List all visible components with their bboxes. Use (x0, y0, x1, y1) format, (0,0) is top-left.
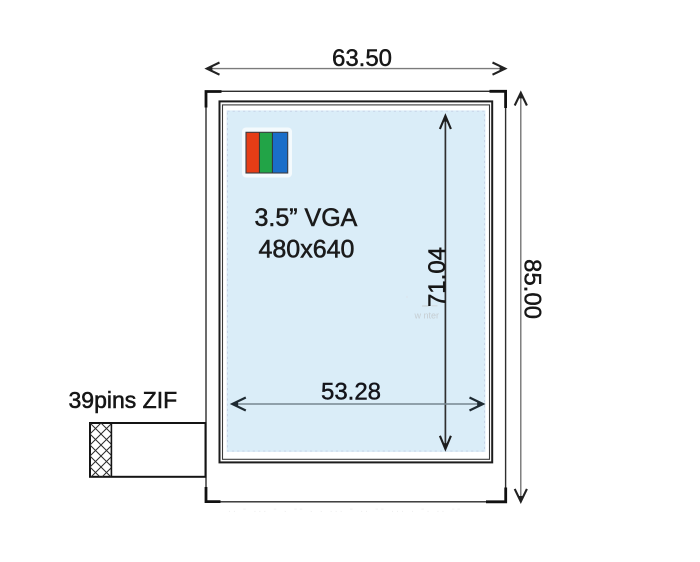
svg-text:w nter: w nter (414, 311, 440, 321)
svg-text:53.28: 53.28 (321, 379, 381, 406)
svg-text:71.04: 71.04 (424, 247, 451, 307)
svg-text:3.5” VGA: 3.5” VGA (255, 204, 358, 232)
svg-text:39pins ZIF: 39pins ZIF (69, 387, 178, 413)
svg-text:480x640: 480x640 (259, 235, 355, 263)
svg-text:63.50: 63.50 (332, 45, 392, 72)
svg-text:.. - ... - . -- . . ... - .. -: .. - ... - . -- . . ... - .. -- ... . -.… (228, 504, 463, 515)
svg-text:85.00: 85.00 (519, 259, 546, 319)
